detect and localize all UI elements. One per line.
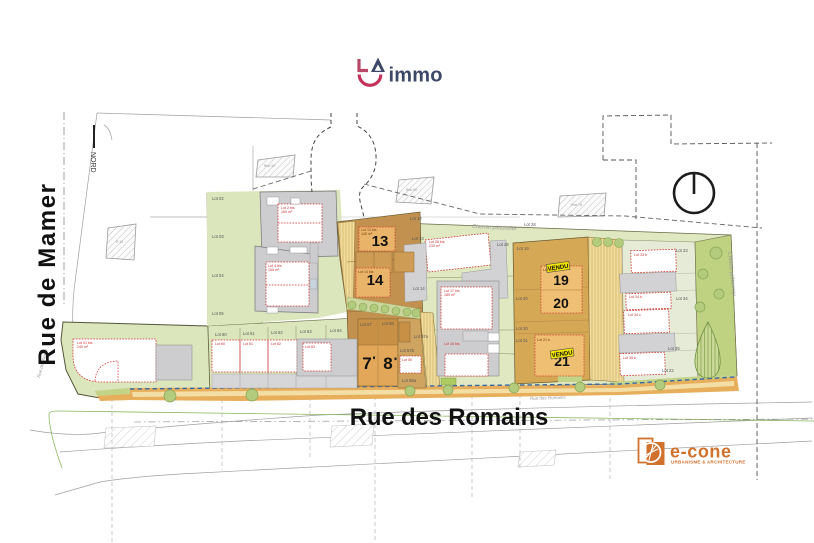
svg-text:Lot 19: Lot 19 [517,246,529,251]
svg-text:e-cone: e-cone [670,442,732,462]
svg-text:Lot 35: Lot 35 [668,346,680,351]
svg-text:140 m²: 140 m² [361,232,373,236]
svg-text:Lot 20: Lot 20 [516,326,528,331]
svg-text:NORD: NORD [89,152,96,173]
svg-text:8: 8 [383,354,392,373]
svg-text:Lot 08: Lot 08 [382,321,394,326]
svg-text:20: 20 [553,295,569,311]
svg-text:Lot 63: Lot 63 [305,345,315,349]
svg-text:Lot 19 b: Lot 19 b [543,268,556,272]
svg-text:Rue 34: Rue 34 [264,164,275,168]
svg-text:Lot 21 b: Lot 21 b [537,338,550,342]
svg-text:URBANISME & ARCHITECTURE: URBANISME & ARCHITECTURE [671,460,746,465]
svg-text:immo: immo [389,65,443,87]
svg-text:Lot 57a: Lot 57a [414,334,429,339]
svg-text:155 m²: 155 m² [268,268,280,272]
svg-text:Lot 34 b: Lot 34 b [629,295,642,299]
svg-text:Lot 63: Lot 63 [300,329,312,334]
svg-text:Lot 55: Lot 55 [402,358,412,362]
svg-text:Lot 16 bis: Lot 16 bis [444,342,460,346]
svg-text:Lot 61: Lot 61 [243,331,255,336]
svg-text:Lot 12: Lot 12 [410,216,422,221]
svg-text:Lot 34: Lot 34 [676,296,688,301]
svg-text:14: 14 [367,272,384,289]
svg-text:Lot 13: Lot 13 [412,236,424,241]
svg-text:Lot 22: Lot 22 [662,368,674,373]
svg-text:160 m²: 160 m² [281,210,293,214]
svg-text:Lot 33: Lot 33 [676,248,688,253]
svg-text:Lot 62: Lot 62 [271,342,281,346]
svg-text:Lot 02: Lot 02 [212,196,224,201]
svg-text:Lot 60: Lot 60 [215,342,225,346]
svg-text:Lot 60: Lot 60 [215,332,227,337]
svg-text:Rue 78: Rue 78 [571,203,582,207]
svg-text:R 12: R 12 [116,240,123,244]
svg-text:Rue 56: Rue 56 [406,188,417,192]
svg-text:210 m²: 210 m² [429,244,441,248]
svg-text:Rue des Romains: Rue des Romains [350,404,548,431]
svg-text:Lot 03: Lot 03 [212,234,224,239]
svg-text:Lot 04: Lot 04 [212,273,224,278]
svg-text:Rue de Mamer: Rue de Mamer [34,182,61,365]
svg-text:Lot 57b: Lot 57b [400,348,415,353]
svg-text:Lot 28: Lot 28 [524,222,536,227]
svg-text:180 m²: 180 m² [444,293,456,297]
svg-text:Lot 61: Lot 61 [243,342,253,346]
svg-text:Lot 21: Lot 21 [516,338,528,343]
svg-text:Lot 34 c: Lot 34 c [628,313,641,317]
svg-text:Lot 62: Lot 62 [271,330,283,335]
svg-text:Lot 07: Lot 07 [360,322,372,327]
svg-text:Lot 55a: Lot 55a [402,378,417,383]
svg-text:Lot 35 b: Lot 35 b [623,356,636,360]
svg-text:Lot 14: Lot 14 [413,286,425,291]
svg-text:Lot 64: Lot 64 [330,328,342,333]
svg-text:Lot 05: Lot 05 [212,311,224,316]
svg-text:19: 19 [553,272,569,288]
svg-text:7: 7 [362,354,371,373]
svg-text:240 m²: 240 m² [77,345,89,349]
svg-text:Lot 28: Lot 28 [497,242,509,247]
svg-text:Lot 33 b: Lot 33 b [634,253,647,257]
svg-text:Lot 14 bis: Lot 14 bis [358,270,374,274]
svg-text:13: 13 [372,233,389,250]
svg-text:Lot 20: Lot 20 [516,296,528,301]
